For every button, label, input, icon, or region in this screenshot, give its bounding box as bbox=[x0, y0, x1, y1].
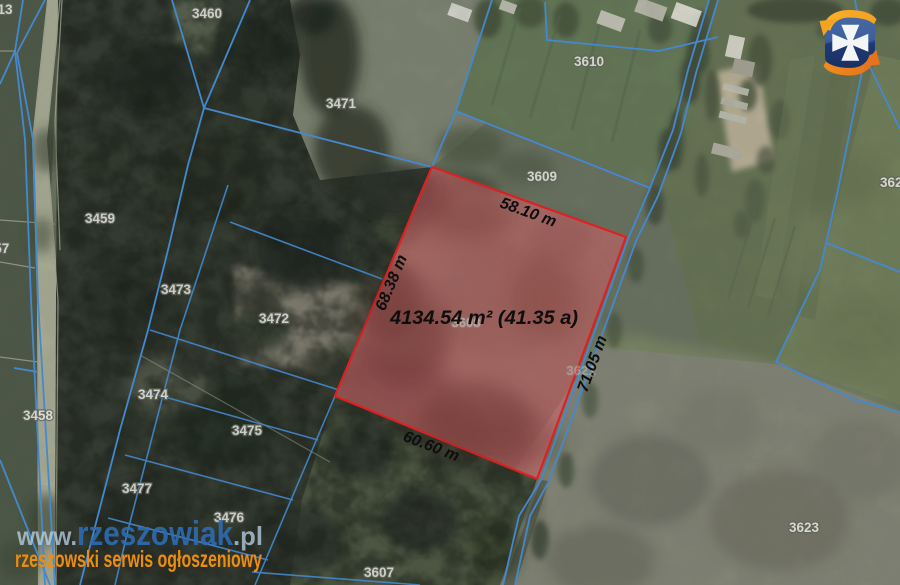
svg-text:3460: 3460 bbox=[192, 6, 222, 21]
svg-text:3623: 3623 bbox=[789, 520, 820, 535]
svg-text:3471: 3471 bbox=[326, 96, 357, 111]
svg-text:3458: 3458 bbox=[23, 408, 54, 423]
svg-text:357: 357 bbox=[0, 241, 9, 256]
svg-text:3473: 3473 bbox=[161, 282, 192, 297]
svg-text:3459: 3459 bbox=[85, 211, 115, 226]
svg-text:3610: 3610 bbox=[574, 54, 604, 69]
svg-text:3472: 3472 bbox=[259, 311, 289, 326]
svg-text:3477: 3477 bbox=[122, 481, 152, 496]
svg-text:3474: 3474 bbox=[138, 387, 169, 402]
svg-text:3609: 3609 bbox=[527, 169, 557, 184]
svg-text:13: 13 bbox=[0, 2, 13, 17]
svg-text:3607: 3607 bbox=[364, 565, 394, 580]
svg-text:rzeszowski serwis ogłoszeniowy: rzeszowski serwis ogłoszeniowy bbox=[15, 546, 262, 572]
svg-text:3475: 3475 bbox=[232, 423, 263, 438]
svg-text:3621: 3621 bbox=[880, 175, 900, 190]
svg-text:4134.54 m² (41.35 a): 4134.54 m² (41.35 a) bbox=[389, 307, 578, 329]
